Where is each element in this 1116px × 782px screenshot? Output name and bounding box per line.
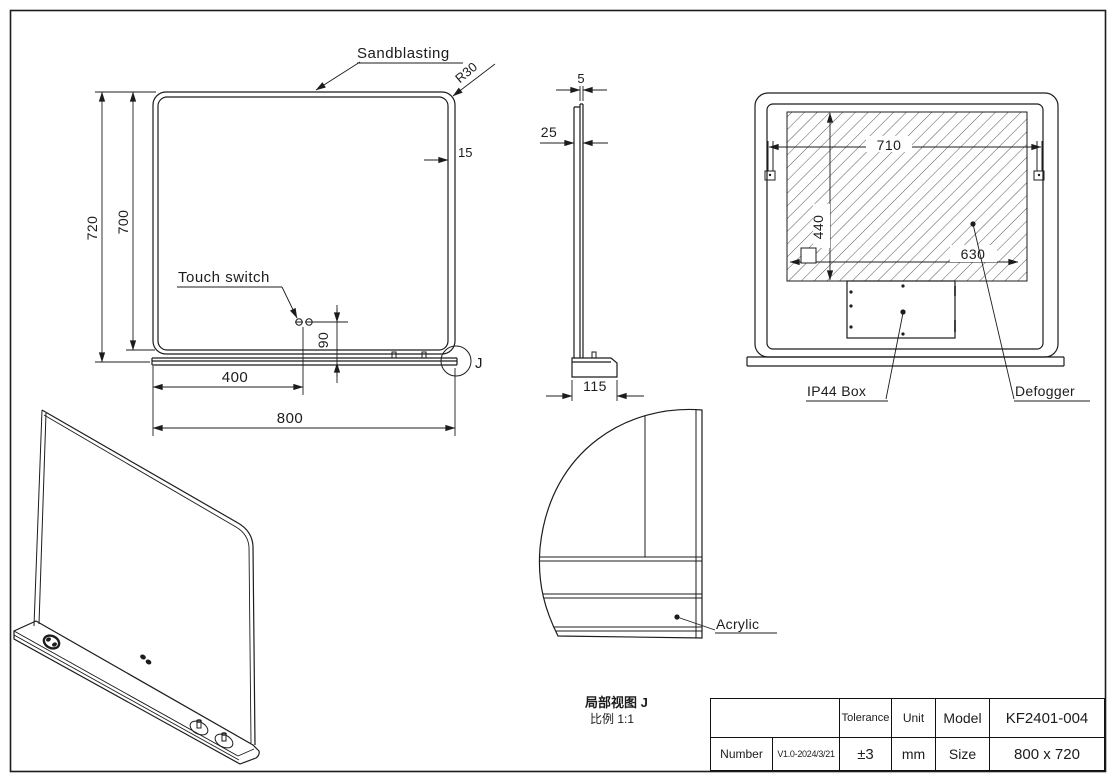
- switch-height-dim: 90: [315, 332, 331, 349]
- unit-header: Unit: [891, 699, 935, 737]
- number-header: Number: [711, 737, 772, 770]
- detail-view-j: Acrylic 局部视图 J 比例 1:1: [520, 409, 777, 726]
- side-profile: [574, 104, 583, 358]
- defogger-height-dim: 440: [810, 215, 826, 240]
- title-block-empty-cell: [711, 699, 839, 737]
- iso-right-fittings: [188, 718, 235, 751]
- detail-view-scale: 比例 1:1: [590, 712, 634, 726]
- detail-boundary: [539, 409, 702, 638]
- switch-offset-dim: 400: [222, 369, 249, 386]
- base-depth-dim: 115: [583, 378, 607, 394]
- model-value: KF2401-004: [989, 699, 1104, 737]
- side-base: [572, 358, 617, 377]
- acrylic-label: Acrylic: [716, 616, 759, 632]
- depth-dim: 25: [541, 124, 558, 140]
- sandblasting-label: Sandblasting: [357, 45, 450, 62]
- height-glass-dim: 700: [115, 210, 131, 235]
- front-dimensions: [95, 62, 495, 436]
- size-header: Size: [935, 737, 989, 770]
- model-header: Model: [935, 699, 989, 737]
- unit-value: mm: [891, 737, 935, 770]
- iso-base-board: [14, 621, 259, 764]
- size-value: 800 x 720: [989, 737, 1104, 770]
- cad-sheet: J: [0, 0, 1116, 782]
- detail-j-label: J: [475, 355, 483, 372]
- glass-thickness-dim: 5: [577, 71, 584, 86]
- number-value: V1.0-2024/3/21: [772, 737, 839, 770]
- iso-panel-outer: [42, 410, 255, 745]
- back-shelf: [747, 357, 1064, 366]
- sensor-box: [801, 248, 816, 263]
- detail-section-lines: [520, 410, 702, 638]
- mirror-outline-outer: [153, 92, 455, 354]
- side-view: 5 25 115: [540, 71, 644, 401]
- defogger-width-bottom-dim: 630: [961, 246, 986, 262]
- defogger-width-top-dim: 710: [877, 137, 902, 153]
- frame-width-dim: 15: [458, 145, 472, 160]
- touch-switch-label: Touch switch: [178, 269, 270, 286]
- back-view: 710 440 630 IP44 Box Defogger: [747, 93, 1090, 401]
- iso-touch-dots: [139, 654, 152, 666]
- detail-view-title: 局部视图 J: [585, 695, 648, 710]
- title-block: Tolerance Unit Model KF2401-004 Number V…: [710, 698, 1105, 771]
- ip44-junction-box: [847, 281, 955, 338]
- ip44-box-label: IP44 Box: [807, 383, 866, 399]
- front-view: J: [84, 45, 495, 436]
- width-total-dim: 800: [277, 410, 304, 427]
- isometric-view: [14, 410, 259, 764]
- tolerance-value: ±3: [839, 737, 891, 770]
- touch-switch-dots: [295, 319, 313, 325]
- height-total-dim: 720: [84, 216, 100, 241]
- defogger-label: Defogger: [1015, 383, 1075, 399]
- tolerance-header: Tolerance: [839, 699, 891, 737]
- drawing-canvas: J: [0, 0, 1116, 782]
- mirror-outline-inner: [158, 97, 448, 350]
